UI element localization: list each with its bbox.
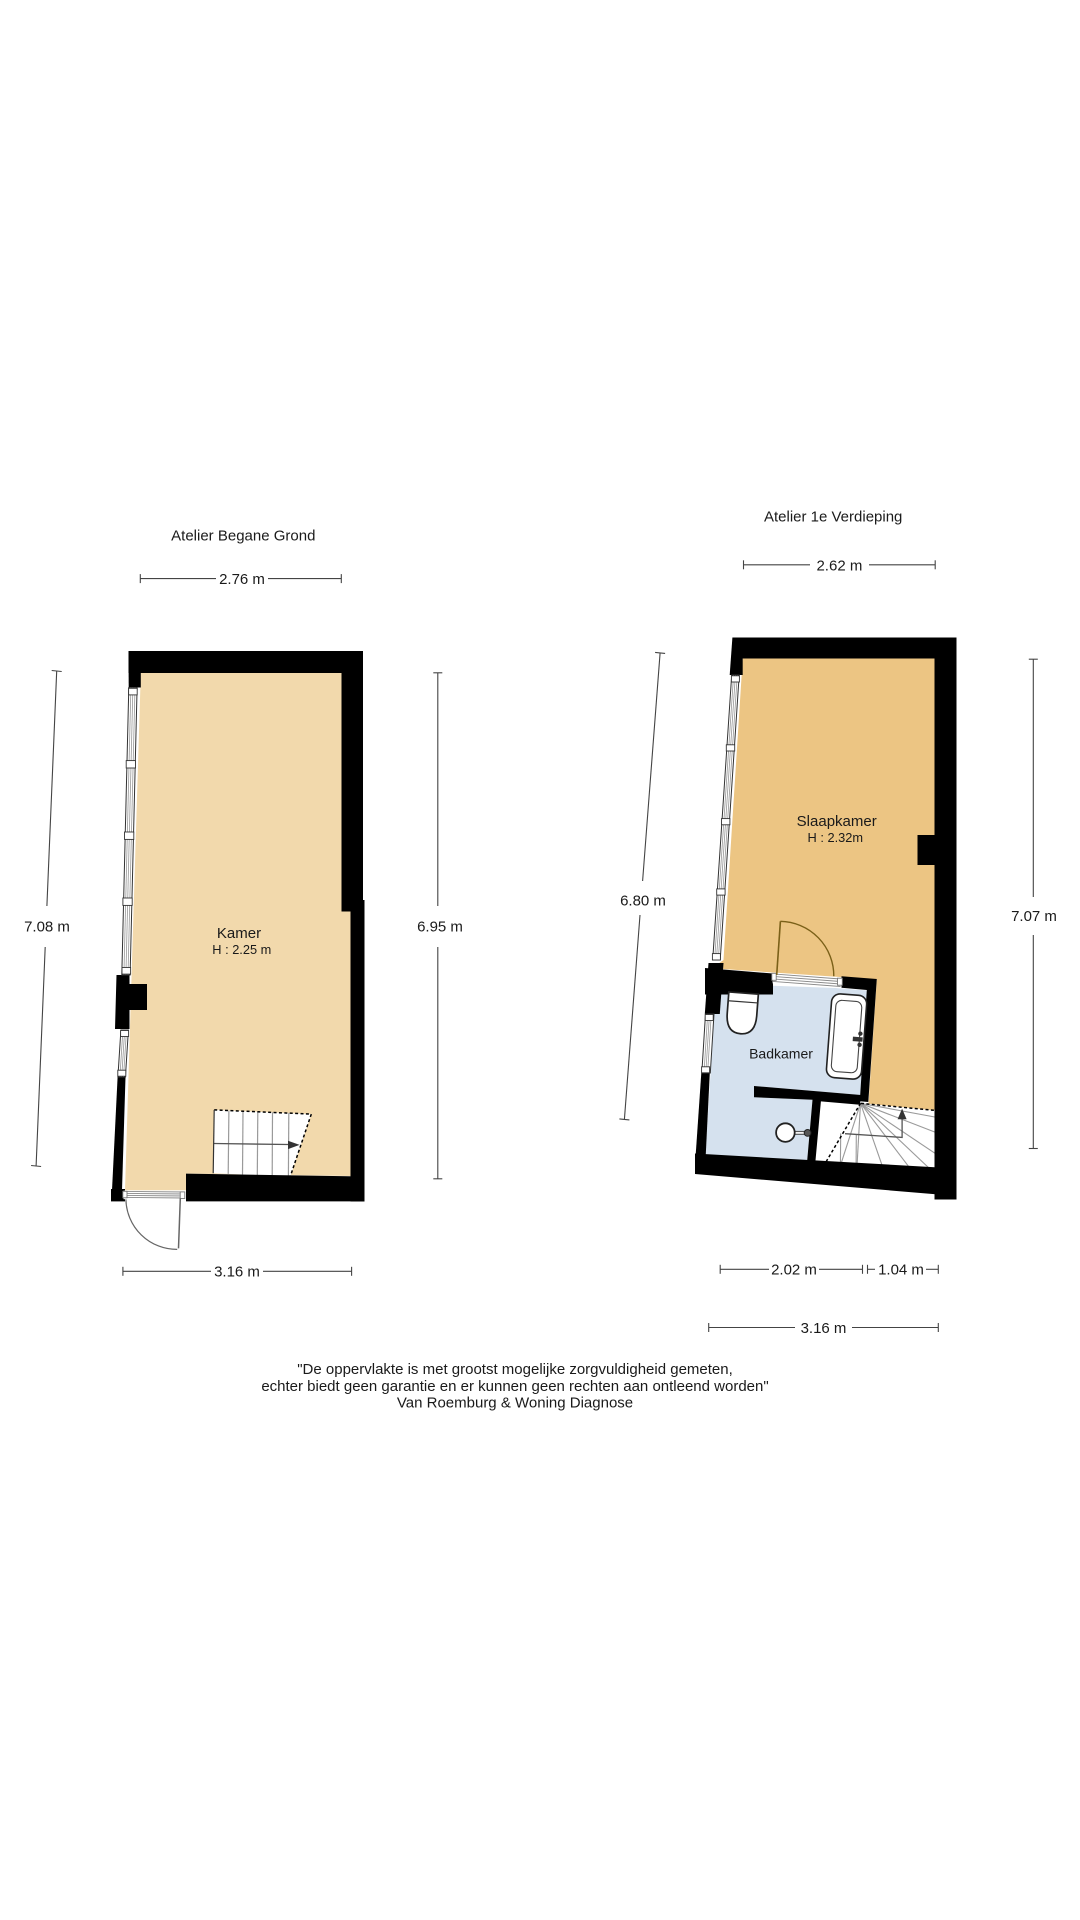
svg-text:Atelier Begane Grond: Atelier Begane Grond [171, 528, 315, 545]
svg-text:6.80 m: 6.80 m [620, 893, 666, 910]
svg-text:Kamer: Kamer [217, 925, 261, 942]
svg-text:echter biedt geen garantie en: echter biedt geen garantie en er kunnen … [261, 1378, 768, 1395]
svg-text:2.02 m: 2.02 m [771, 1262, 817, 1279]
svg-text:Atelier 1e Verdieping: Atelier 1e Verdieping [764, 509, 902, 526]
svg-text:7.07 m: 7.07 m [1011, 908, 1057, 925]
svg-text:H : 2.32m: H : 2.32m [808, 830, 863, 845]
svg-text:Van Roemburg & Woning Diagnose: Van Roemburg & Woning Diagnose [397, 1395, 633, 1412]
svg-text:2.62 m: 2.62 m [816, 557, 862, 574]
svg-text:3.16 m: 3.16 m [214, 1264, 260, 1281]
svg-text:7.08 m: 7.08 m [24, 919, 70, 936]
svg-text:1.04 m: 1.04 m [878, 1262, 924, 1279]
svg-text:"De oppervlakte is met grootst: "De oppervlakte is met grootst mogelijke… [297, 1361, 733, 1378]
svg-text:6.95 m: 6.95 m [417, 919, 463, 936]
svg-text:Slaapkamer: Slaapkamer [797, 813, 877, 830]
svg-text:2.76 m: 2.76 m [219, 571, 265, 588]
svg-text:H : 2.25 m: H : 2.25 m [212, 942, 271, 957]
svg-text:Badkamer: Badkamer [749, 1046, 813, 1062]
svg-text:3.16 m: 3.16 m [801, 1320, 847, 1337]
